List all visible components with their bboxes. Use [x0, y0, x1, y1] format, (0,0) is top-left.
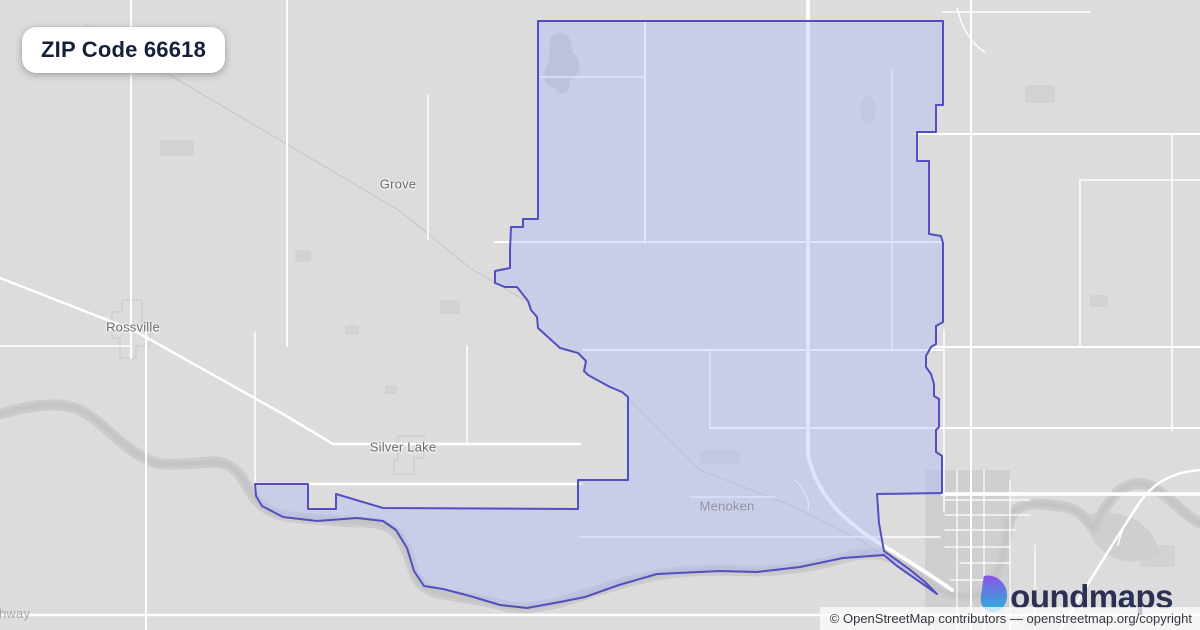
silver-lake-outline: [394, 436, 424, 474]
attribution-bar: © OpenStreetMap contributors — openstree…: [820, 607, 1200, 630]
osm-copyright-link[interactable]: © OpenStreetMap contributors — openstree…: [830, 611, 1192, 626]
basemap-svg: [0, 0, 1200, 630]
zip-code-badge: ZIP Code 66618: [22, 27, 225, 73]
us24-diagonal: [0, 278, 333, 444]
town-outlines: [112, 300, 424, 474]
zip-code-badge-label: ZIP Code 66618: [41, 37, 206, 62]
map-canvas[interactable]: Grove Rossville Silver Lake Menoken hway: [0, 0, 1200, 630]
